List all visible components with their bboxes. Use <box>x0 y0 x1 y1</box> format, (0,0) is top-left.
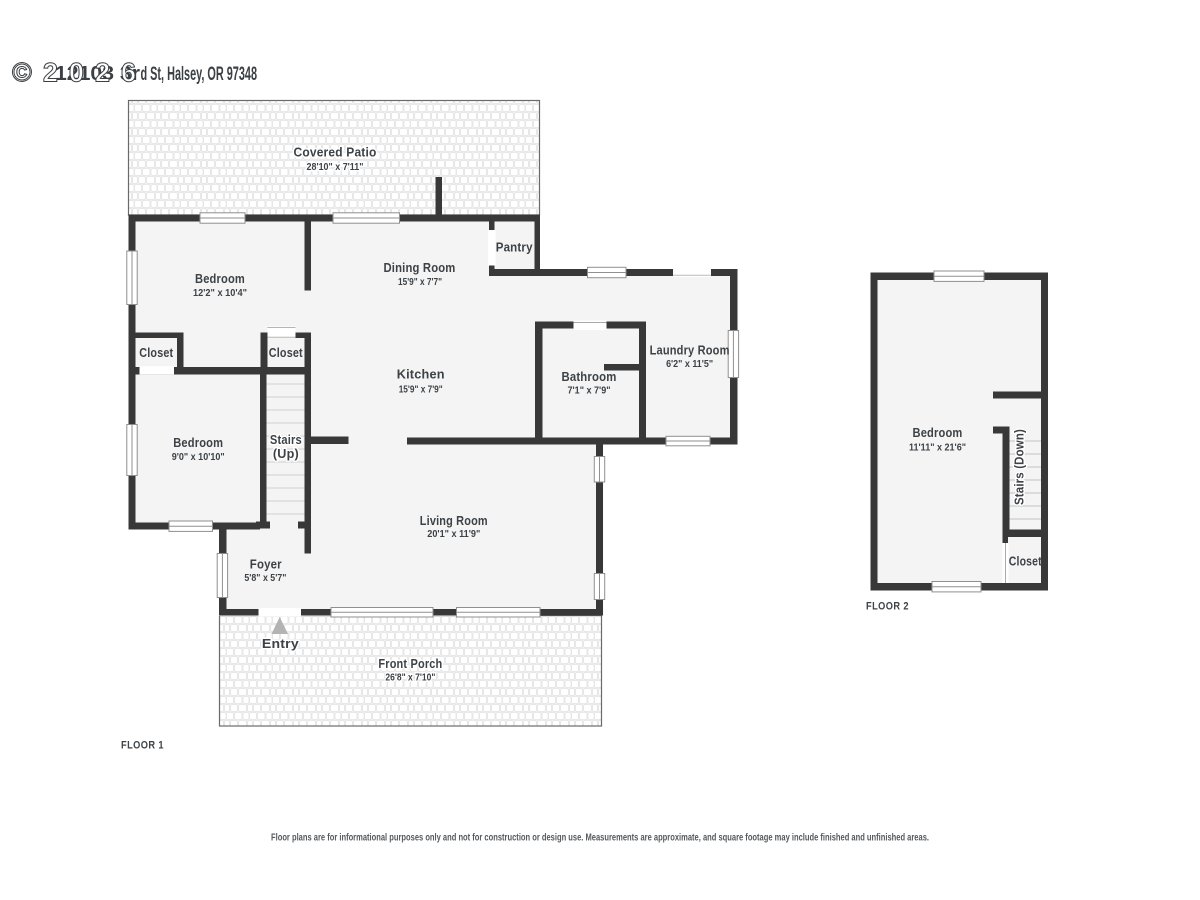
svg-text:7'1" x 7'9": 7'1" x 7'9" <box>568 385 611 397</box>
svg-text:Closet: Closet <box>269 345 303 360</box>
svg-text:15'9" x 7'7": 15'9" x 7'7" <box>398 276 442 288</box>
svg-text:(Up): (Up) <box>273 446 299 461</box>
svg-text:Closet: Closet <box>139 345 173 360</box>
svg-text:Closet: Closet <box>1009 553 1042 568</box>
svg-text:Entry: Entry <box>262 636 300 651</box>
svg-text:Front Porch: Front Porch <box>378 656 442 671</box>
svg-text:Bathroom: Bathroom <box>562 369 617 384</box>
svg-text:Laundry Room: Laundry Room <box>650 342 730 357</box>
svg-text:Covered Patio: Covered Patio <box>294 145 377 160</box>
svg-text:Kitchen: Kitchen <box>397 366 445 381</box>
svg-text:Bedroom: Bedroom <box>173 435 223 450</box>
svg-text:Bedroom: Bedroom <box>913 425 963 440</box>
svg-text:Bedroom: Bedroom <box>195 271 245 286</box>
svg-text:26'8" x 7'10": 26'8" x 7'10" <box>385 672 435 684</box>
svg-text:Stairs: Stairs <box>270 432 302 447</box>
svg-text:Pantry: Pantry <box>496 240 533 255</box>
svg-text:Living Room: Living Room <box>420 513 488 528</box>
svg-text:28'10" x 7'11": 28'10" x 7'11" <box>307 161 364 173</box>
svg-text:5'8" x 5'7": 5'8" x 5'7" <box>244 572 286 584</box>
svg-text:11'11" x 21'6": 11'11" x 21'6" <box>909 442 966 454</box>
svg-text:9'0" x 10'10": 9'0" x 10'10" <box>172 451 225 463</box>
svg-text:6'2" x 11'5": 6'2" x 11'5" <box>666 358 713 370</box>
svg-text:FLOOR 2: FLOOR 2 <box>866 601 909 613</box>
svg-text:Floor plans are for informatio: Floor plans are for informational purpos… <box>271 833 929 844</box>
svg-text:Stairs (Down): Stairs (Down) <box>1012 429 1027 505</box>
svg-text:FLOOR 1: FLOOR 1 <box>121 740 164 752</box>
svg-text:20'1" x 11'9": 20'1" x 11'9" <box>427 528 480 540</box>
svg-text:Dining Room: Dining Room <box>384 260 456 275</box>
svg-text:15'9" x 7'9": 15'9" x 7'9" <box>399 383 443 395</box>
svg-text:d St, Halsey, OR 97348: d St, Halsey, OR 97348 <box>141 63 258 85</box>
svg-text:Foyer: Foyer <box>250 557 282 572</box>
svg-text:12'2" x 10'4": 12'2" x 10'4" <box>193 287 247 299</box>
